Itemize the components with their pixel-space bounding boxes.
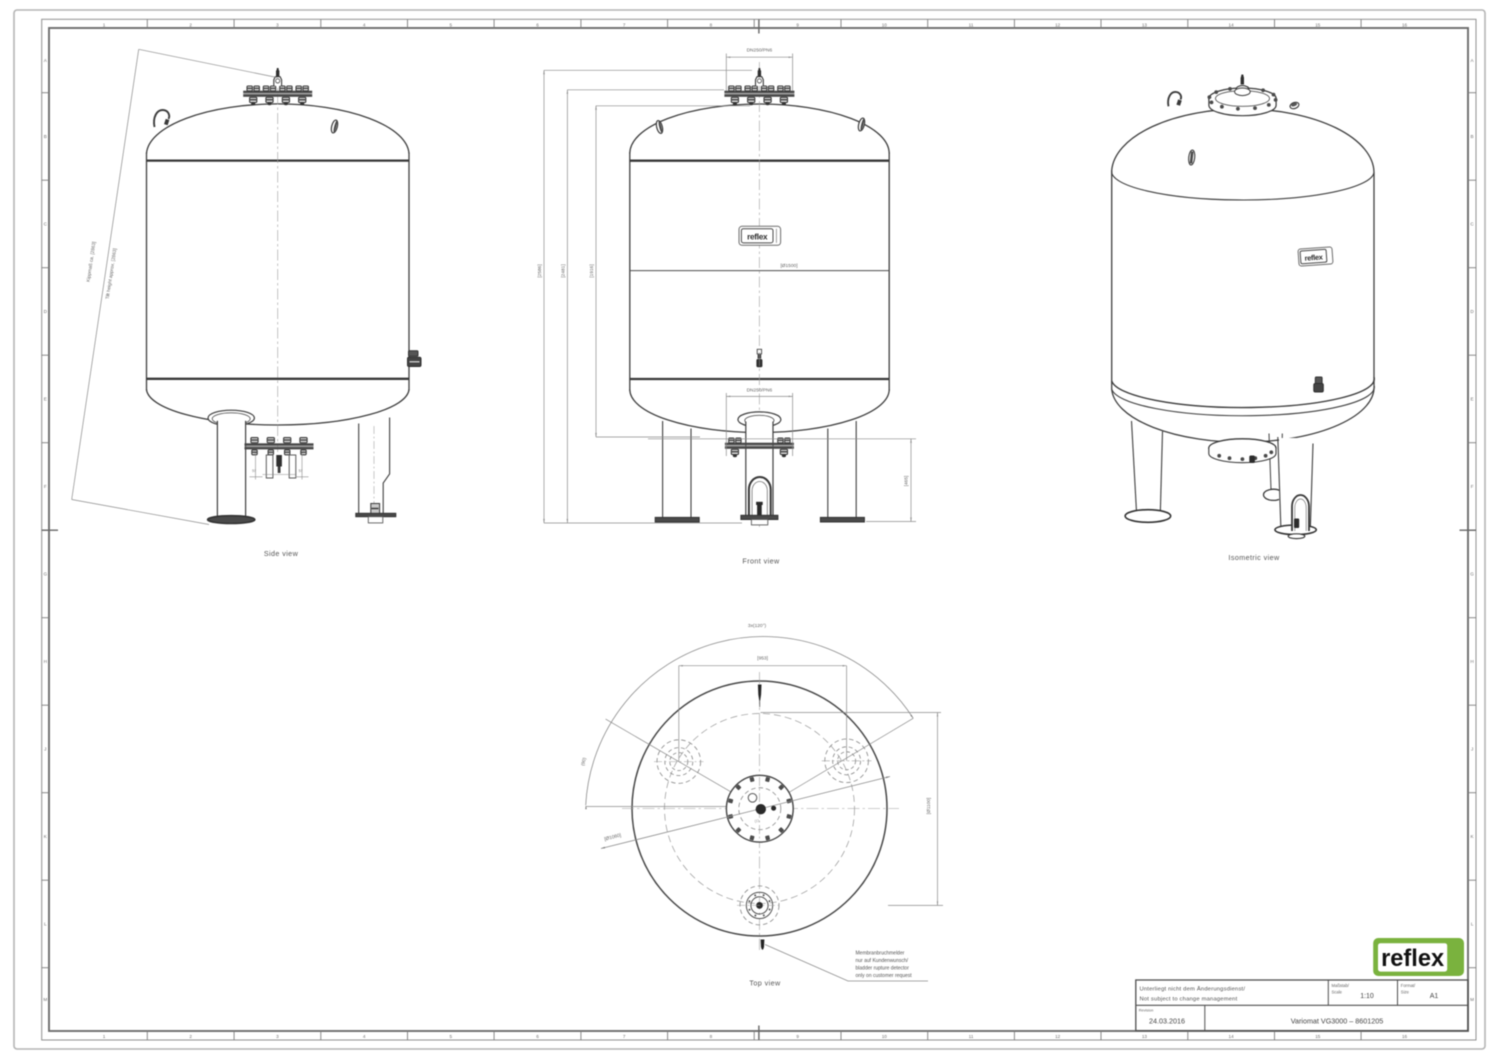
svg-text:9: 9 <box>796 1034 799 1039</box>
svg-text:J: J <box>44 747 46 752</box>
svg-text:12: 12 <box>1055 1034 1061 1039</box>
svg-text:16: 16 <box>1402 1034 1408 1039</box>
svg-text:Scale: Scale <box>1332 990 1343 995</box>
svg-text:H: H <box>44 659 47 664</box>
svg-text:10: 10 <box>882 1034 888 1039</box>
svg-text:Variomat VG3000 – 8601205: Variomat VG3000 – 8601205 <box>1291 1017 1384 1026</box>
svg-text:1: 1 <box>103 22 106 27</box>
svg-text:reflex: reflex <box>747 233 768 242</box>
svg-text:E: E <box>44 397 47 402</box>
svg-text:5: 5 <box>450 1034 453 1039</box>
svg-text:L: L <box>1471 922 1474 927</box>
svg-text:Maßstab/: Maßstab/ <box>1332 983 1350 988</box>
svg-text:13: 13 <box>1142 22 1148 27</box>
svg-text:7: 7 <box>623 1034 626 1039</box>
svg-text:F: F <box>1471 484 1474 489</box>
svg-text:B: B <box>44 134 47 139</box>
svg-text:nur auf Kundenwunsch/: nur auf Kundenwunsch/ <box>856 958 909 964</box>
svg-text:DN250/PN6: DN250/PN6 <box>747 48 773 54</box>
svg-text:8: 8 <box>710 22 713 27</box>
svg-text:12: 12 <box>1055 22 1061 27</box>
svg-text:3: 3 <box>276 22 279 27</box>
svg-text:1: 1 <box>103 1034 106 1039</box>
svg-text:[2481]: [2481] <box>560 264 566 277</box>
svg-text:6: 6 <box>536 22 539 27</box>
svg-text:6: 6 <box>536 1034 539 1039</box>
svg-text:only on customer request: only on customer request <box>856 973 913 979</box>
svg-text:Revision: Revision <box>1139 1009 1154 1013</box>
svg-text:F: F <box>44 484 47 489</box>
svg-text:3x(120°): 3x(120°) <box>748 623 767 629</box>
svg-text:G: G <box>1470 572 1474 577</box>
svg-text:H: H <box>1470 659 1473 664</box>
svg-text:13: 13 <box>1142 1034 1148 1039</box>
svg-text:B: B <box>1471 134 1474 139</box>
svg-text:1:10: 1:10 <box>1360 993 1374 1000</box>
svg-text:10: 10 <box>882 22 888 27</box>
svg-text:reflex: reflex <box>1381 945 1444 972</box>
svg-text:Isometric view: Isometric view <box>1228 553 1280 562</box>
svg-text:5: 5 <box>450 22 453 27</box>
svg-text:Not subject to change manageme: Not subject to change management <box>1140 997 1238 1003</box>
svg-text:[2586]: [2586] <box>537 264 543 277</box>
svg-text:8: 8 <box>710 1034 713 1039</box>
svg-text:M: M <box>43 997 47 1002</box>
svg-text:57: 57 <box>252 469 256 473</box>
svg-text:4: 4 <box>363 22 366 27</box>
svg-text:[Ø1100]: [Ø1100] <box>926 798 932 815</box>
svg-text:14: 14 <box>1229 22 1235 27</box>
svg-text:24.03.2016: 24.03.2016 <box>1149 1017 1185 1026</box>
svg-text:DN250/PN6: DN250/PN6 <box>747 388 773 394</box>
svg-text:15: 15 <box>1315 22 1321 27</box>
svg-text:[1916]: [1916] <box>589 264 595 277</box>
svg-text:L: L <box>44 922 47 927</box>
svg-text:2: 2 <box>189 22 192 27</box>
svg-text:reflex: reflex <box>1304 252 1324 262</box>
svg-text:Front view: Front view <box>742 557 780 566</box>
svg-text:Side view: Side view <box>264 549 299 558</box>
svg-text:bladder rupture detector: bladder rupture detector <box>856 966 910 972</box>
svg-text:Top view: Top view <box>749 979 781 988</box>
svg-text:Unterliegt nicht dem Änderungs: Unterliegt nicht dem Änderungsdienst/ <box>1140 986 1246 993</box>
svg-text:M: M <box>1470 997 1474 1002</box>
svg-text:Size: Size <box>1401 990 1410 995</box>
svg-text:15: 15 <box>1315 1034 1321 1039</box>
svg-text:57: 57 <box>299 469 303 473</box>
svg-text:14: 14 <box>1229 1034 1235 1039</box>
svg-text:11: 11 <box>969 22 974 27</box>
svg-text:4: 4 <box>363 1034 366 1039</box>
svg-text:A1: A1 <box>1430 993 1439 1000</box>
svg-text:[953]: [953] <box>757 656 768 662</box>
svg-text:[465]: [465] <box>904 476 910 487</box>
svg-text:16: 16 <box>1402 22 1408 27</box>
svg-text:Format/: Format/ <box>1401 983 1416 988</box>
svg-text:7: 7 <box>623 22 626 27</box>
svg-text:11: 11 <box>969 1034 974 1039</box>
svg-text:Membranbruchmelder: Membranbruchmelder <box>856 951 905 957</box>
svg-text:9: 9 <box>796 22 799 27</box>
svg-text:3: 3 <box>276 1034 279 1039</box>
svg-text:J: J <box>1471 747 1473 752</box>
svg-text:E: E <box>1471 397 1474 402</box>
svg-text:[Ø1500]: [Ø1500] <box>780 263 797 269</box>
svg-text:2: 2 <box>189 1034 192 1039</box>
svg-text:G: G <box>44 572 48 577</box>
